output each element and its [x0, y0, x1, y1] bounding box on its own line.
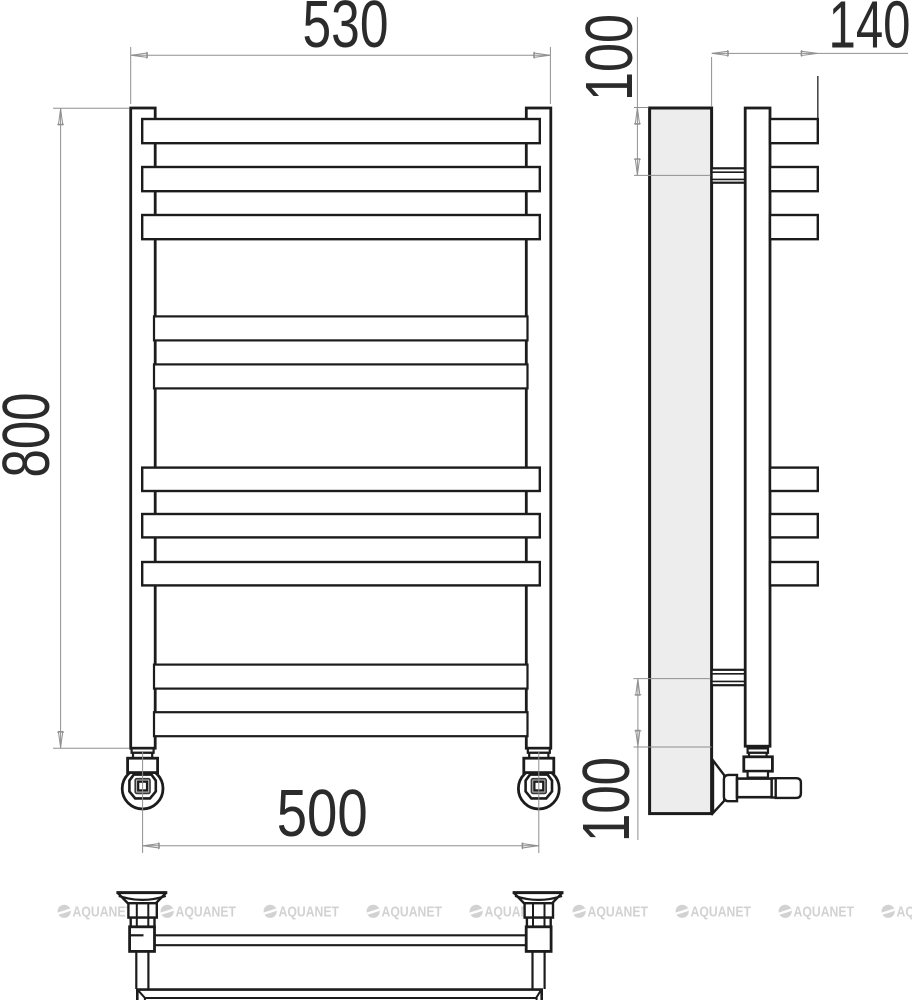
svg-text:AQUANET: AQUANET	[73, 904, 134, 921]
svg-text:140: 140	[829, 0, 911, 63]
svg-text:800: 800	[0, 393, 64, 478]
svg-text:AQUANET: AQUANET	[691, 904, 752, 921]
svg-text:100: 100	[569, 757, 644, 842]
svg-text:AQUANET: AQUANET	[176, 904, 237, 921]
svg-text:AQUANET: AQUANET	[897, 904, 912, 921]
svg-text:AQUANET: AQUANET	[382, 904, 443, 921]
svg-text:AQUANET: AQUANET	[279, 904, 340, 921]
svg-text:AQUANET: AQUANET	[794, 904, 855, 921]
svg-text:530: 530	[303, 0, 389, 62]
svg-text:AQUANET: AQUANET	[588, 904, 649, 921]
svg-text:100: 100	[572, 14, 647, 101]
svg-text:500: 500	[277, 776, 368, 851]
